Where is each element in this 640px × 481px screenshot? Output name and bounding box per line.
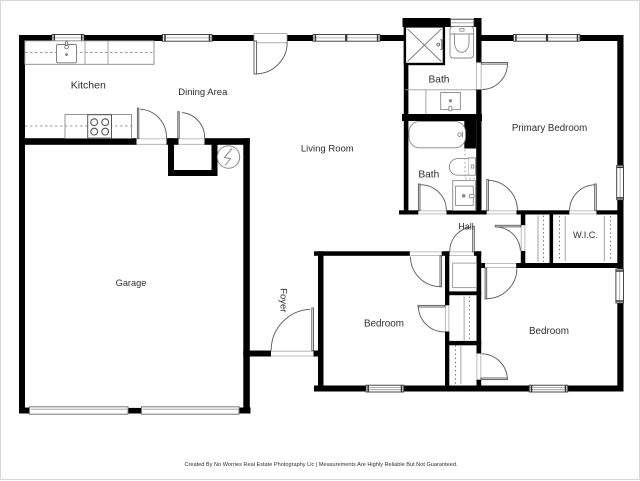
svg-text:Foyer: Foyer bbox=[278, 288, 289, 312]
svg-text:Hall: Hall bbox=[458, 222, 474, 232]
svg-text:Bedroom: Bedroom bbox=[364, 318, 404, 329]
svg-text:Bath: Bath bbox=[418, 170, 439, 181]
svg-text:Bedroom: Bedroom bbox=[529, 326, 569, 337]
svg-text:Kitchen: Kitchen bbox=[71, 79, 106, 91]
svg-text:Dining Area: Dining Area bbox=[178, 87, 228, 98]
svg-text:Primary Bedroom: Primary Bedroom bbox=[512, 123, 587, 134]
svg-text:Living Room: Living Room bbox=[301, 143, 354, 154]
svg-text:W.I.C.: W.I.C. bbox=[573, 230, 598, 240]
svg-text:Created By No Worries Real Est: Created By No Worries Real Estate Photog… bbox=[184, 462, 458, 468]
svg-text:Bath: Bath bbox=[429, 75, 450, 86]
svg-text:Garage: Garage bbox=[116, 278, 147, 288]
